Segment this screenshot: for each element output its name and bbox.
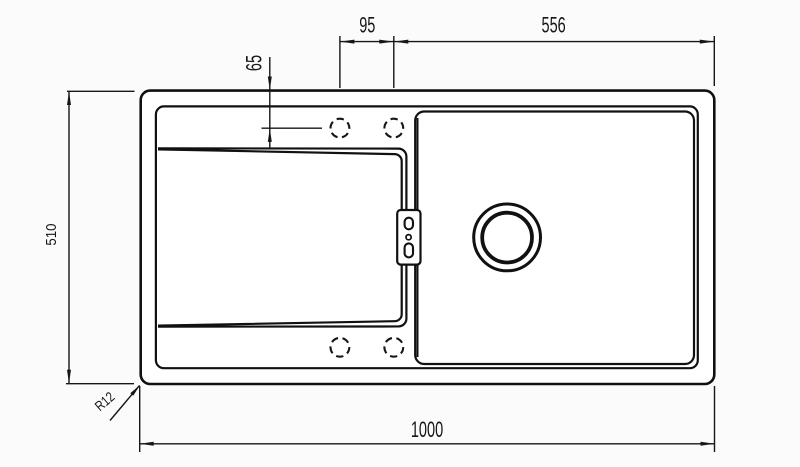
- svg-text:1000: 1000: [411, 417, 443, 442]
- svg-text:510: 510: [42, 223, 59, 245]
- svg-text:65: 65: [241, 55, 266, 71]
- svg-text:95: 95: [359, 12, 375, 37]
- svg-text:556: 556: [541, 12, 565, 37]
